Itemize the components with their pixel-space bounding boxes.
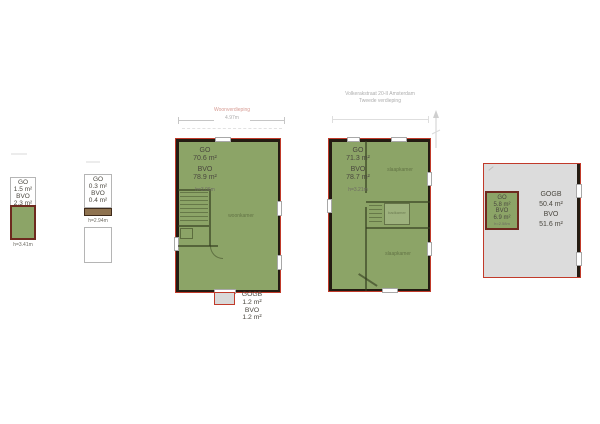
window — [215, 137, 231, 142]
closet — [180, 228, 193, 239]
interior-wall-diagonal — [358, 273, 377, 286]
window — [327, 199, 332, 213]
window — [277, 255, 282, 270]
go-value: 71.3 m² — [335, 155, 381, 163]
go-label: GO — [78, 176, 118, 183]
roof-shed-area: GO 5.8 m² BVO 6.9 m² h=2.58m — [485, 191, 519, 230]
go-value: 0.3 m² — [78, 183, 118, 190]
attic-storage-labels: GO 1.5 m² BVO 2.3 m² — [4, 179, 42, 207]
living-floor-dim-tick-right — [284, 117, 285, 124]
window — [382, 288, 398, 293]
go-label: GO — [335, 147, 381, 155]
attic-access-height-note: h=2.94m — [78, 218, 118, 224]
bvo-label: BVO — [522, 210, 580, 220]
living-floor-width-dim: 4.97m — [214, 115, 250, 122]
address-line-1: Volkerakstraat 20-II Amsterdam — [300, 91, 460, 98]
sleeping-floor-dim-tick-left — [332, 116, 333, 123]
terrace-labels: GOGB 50.4 m² BVO 51.6 m² — [522, 190, 580, 230]
go-value: 1.5 m² — [4, 186, 42, 193]
attic-storage-area — [10, 205, 36, 240]
gogb-value: 1.2 m² — [231, 299, 273, 307]
door-swing — [210, 246, 223, 259]
staircase — [180, 192, 208, 223]
floorplan-living-floor: woonkamer GO 70.6 m² BVO 78.9 m² h=3.06m — [175, 138, 281, 293]
balcony-labels: GOGB 1.2 m² BVO 1.2 m² — [231, 291, 273, 322]
go-value: 70.6 m² — [182, 155, 228, 163]
wall-top — [329, 139, 430, 142]
window — [277, 201, 282, 216]
attic-access-outline-bottom — [84, 227, 112, 263]
window — [427, 172, 432, 186]
floorplan-roof-terrace: GO 5.8 m² BVO 6.9 m² h=2.58m GOGB 50.4 m… — [483, 163, 581, 278]
corner-tick — [488, 166, 493, 171]
window — [174, 237, 179, 251]
bvo-value: 78.7 m² — [335, 174, 381, 182]
area-labels: GO 70.6 m² BVO 78.9 m² h=3.06m — [182, 147, 228, 194]
window — [427, 242, 432, 256]
floorplan-sheet: GO 1.5 m² BVO 2.3 m² h=3.41m GO 0.3 m² B… — [0, 0, 600, 424]
address-line-2: Tweede verdieping — [300, 98, 460, 105]
interior-wall — [366, 227, 430, 229]
bvo-value: 78.9 m² — [182, 174, 228, 182]
wall-right — [428, 139, 431, 291]
window — [576, 252, 582, 266]
wall-left — [329, 139, 332, 291]
staircase — [369, 205, 382, 225]
attic-storage-dim-mark — [11, 153, 27, 155]
bvo-value: 1.2 m² — [231, 314, 273, 322]
wall-bottom — [329, 289, 430, 292]
attic-storage-height-note: h=3.41m — [4, 242, 42, 248]
living-floor-title: Woonverdieping — [180, 107, 284, 113]
room-label: badkamer — [384, 210, 410, 215]
bvo-label: BVO — [4, 193, 42, 200]
interior-wall — [178, 225, 209, 227]
attic-access-labels: GO 0.3 m² BVO 0.4 m² — [78, 176, 118, 204]
bvo-value: 0.4 m² — [78, 197, 118, 204]
bvo-label: BVO — [182, 166, 228, 174]
living-floor-dim-tick-left — [178, 117, 179, 124]
gogb-label: GOGB — [231, 291, 273, 299]
bvo-label: BVO — [335, 166, 381, 174]
living-floor-dashed-line — [182, 128, 282, 129]
attic-access-dim-mark — [86, 161, 100, 163]
room-label: slaapkamer — [369, 251, 427, 257]
floorplan-sleeping-floor: slaapkamer badkamer slaapkamer GO 71.3 m… — [328, 138, 431, 292]
attic-access-hatch-area — [84, 208, 112, 216]
bvo-label: BVO — [231, 307, 273, 315]
bvo-value: 51.6 m² — [522, 220, 580, 230]
room-label: woonkamer — [211, 213, 271, 219]
area-labels: GO 71.3 m² BVO 78.7 m² h=3.21m — [335, 147, 381, 194]
go-label: GO — [182, 147, 228, 155]
gogb-label: GOGB — [522, 190, 580, 200]
window — [391, 137, 407, 142]
height-note: h=3.21m — [335, 186, 381, 194]
sleeping-floor-dim-line — [332, 119, 429, 120]
wall-left — [176, 139, 179, 292]
go-label: GO — [4, 179, 42, 186]
height-note: h=3.06m — [182, 186, 228, 194]
gogb-value: 50.4 m² — [522, 200, 580, 210]
bvo-label: BVO — [78, 190, 118, 197]
window — [347, 137, 360, 142]
shed-labels: GO 5.8 m² BVO 6.9 m² h=2.58m — [484, 195, 520, 228]
height-note: h=2.58m — [484, 221, 520, 228]
